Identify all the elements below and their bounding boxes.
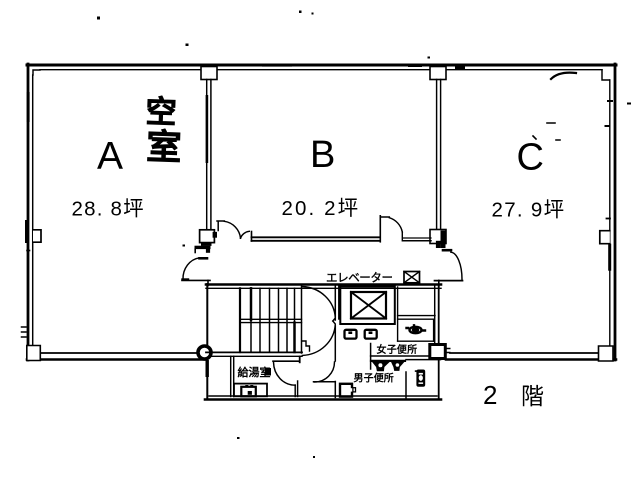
svg-text:A: A (97, 135, 123, 178)
svg-text:C: C (517, 137, 544, 179)
svg-text:男子便所: 男子便所 (354, 372, 394, 385)
svg-text:2: 2 (483, 380, 497, 410)
svg-text:28. 8坪: 28. 8坪 (72, 198, 145, 221)
svg-text:階: 階 (521, 383, 544, 409)
svg-text:空: 空 (145, 94, 177, 130)
svg-text:エレベーター: エレベーター (326, 272, 393, 285)
svg-text:B: B (310, 134, 335, 176)
svg-text:室: 室 (146, 127, 182, 168)
svg-text:給湯室: 給湯室 (238, 365, 271, 379)
svg-text:27. 9坪: 27. 9坪 (492, 199, 566, 222)
svg-text:20. 2坪: 20. 2坪 (282, 197, 361, 220)
svg-text:女子便所: 女子便所 (377, 343, 418, 356)
